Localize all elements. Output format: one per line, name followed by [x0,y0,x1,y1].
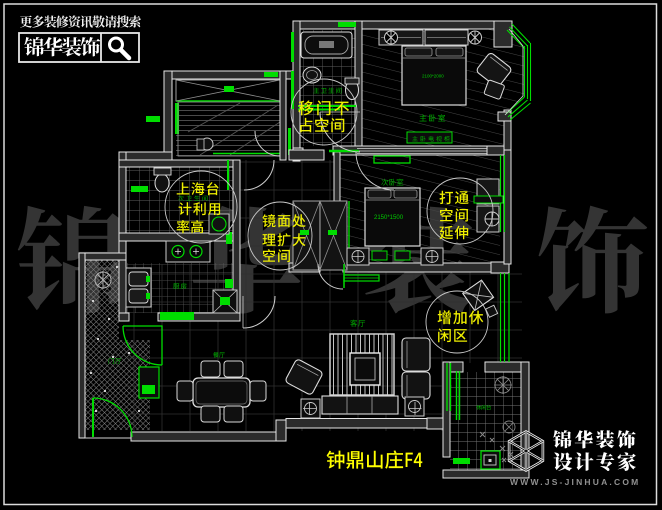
svg-text:WWW.JS-JINHUA.COM: WWW.JS-JINHUA.COM [510,477,640,487]
svg-text:2100*2000: 2100*2000 [422,74,444,79]
svg-text:2150*1500: 2150*1500 [374,215,404,221]
